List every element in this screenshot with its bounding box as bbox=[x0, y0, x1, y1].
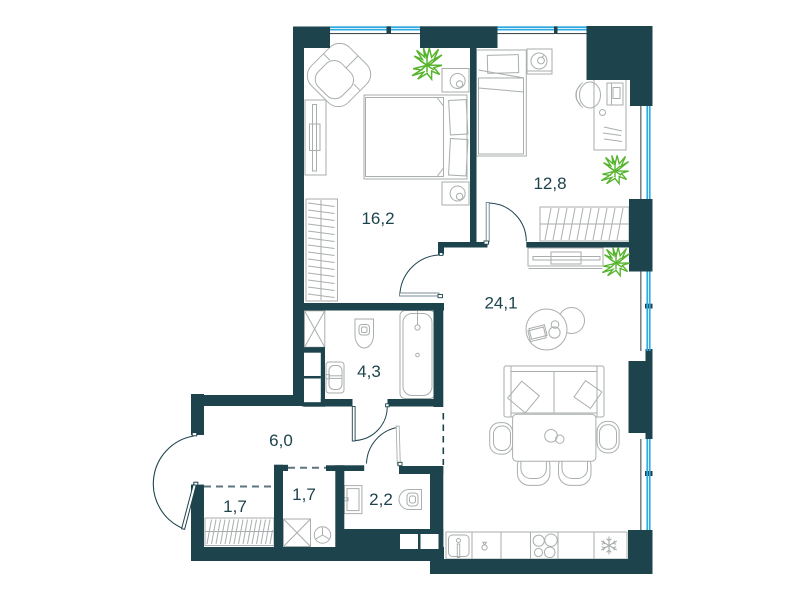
svg-text:2,2: 2,2 bbox=[369, 490, 393, 509]
svg-text:12,8: 12,8 bbox=[533, 174, 566, 193]
svg-text:6,0: 6,0 bbox=[269, 431, 293, 450]
svg-text:4,3: 4,3 bbox=[357, 362, 381, 381]
svg-text:24,1: 24,1 bbox=[484, 294, 517, 313]
svg-text:16,2: 16,2 bbox=[361, 209, 394, 228]
svg-text:1,7: 1,7 bbox=[292, 485, 316, 504]
svg-text:1,7: 1,7 bbox=[223, 497, 247, 516]
